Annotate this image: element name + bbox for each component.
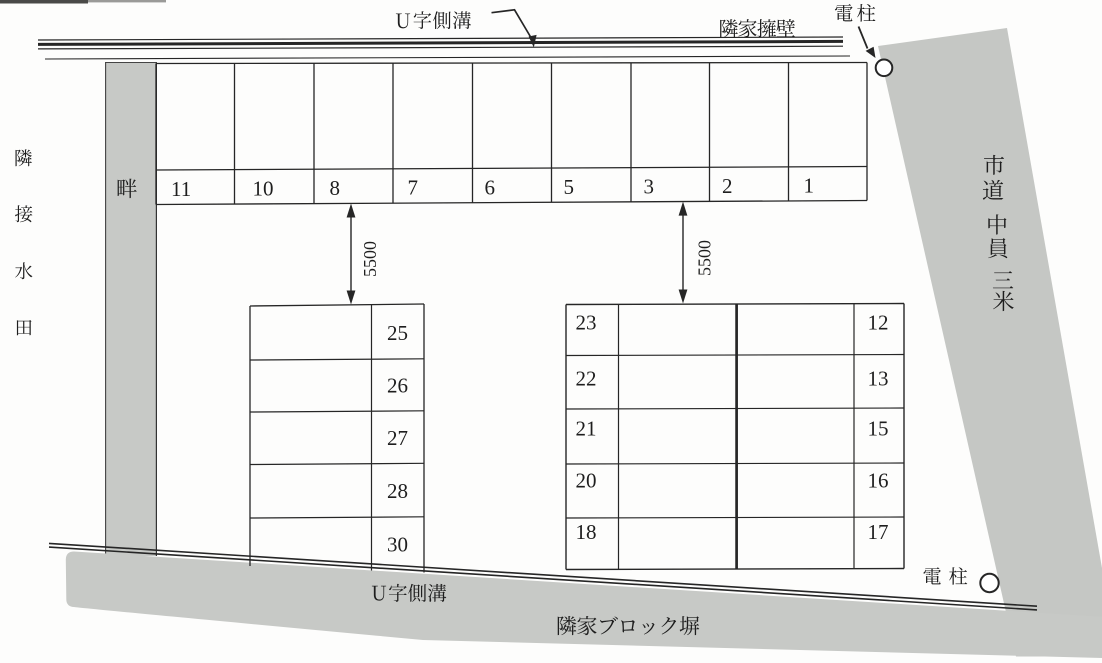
svg-text:7: 7: [408, 176, 419, 200]
svg-text:8: 8: [330, 176, 341, 200]
svg-text:22: 22: [576, 367, 597, 391]
svg-text:5: 5: [564, 175, 575, 199]
svg-text:15: 15: [868, 417, 889, 441]
svg-text:11: 11: [171, 177, 191, 201]
svg-text:16: 16: [868, 469, 889, 493]
svg-text:10: 10: [253, 177, 274, 201]
svg-text:13: 13: [868, 367, 889, 391]
svg-text:28: 28: [387, 479, 408, 503]
svg-text:18: 18: [576, 520, 597, 544]
svg-text:21: 21: [576, 417, 597, 441]
svg-text:25: 25: [387, 321, 408, 345]
svg-text:12: 12: [868, 311, 889, 335]
svg-text:5500: 5500: [360, 241, 380, 277]
svg-text:3: 3: [644, 174, 655, 198]
svg-text:23: 23: [576, 311, 597, 335]
svg-text:30: 30: [387, 533, 408, 557]
svg-text:6: 6: [485, 175, 496, 199]
svg-text:2: 2: [722, 174, 733, 198]
svg-text:26: 26: [387, 374, 408, 398]
svg-text:20: 20: [576, 469, 597, 493]
svg-text:5500: 5500: [695, 240, 715, 276]
svg-text:27: 27: [387, 426, 408, 450]
svg-text:1: 1: [804, 173, 815, 197]
svg-text:17: 17: [868, 520, 889, 544]
